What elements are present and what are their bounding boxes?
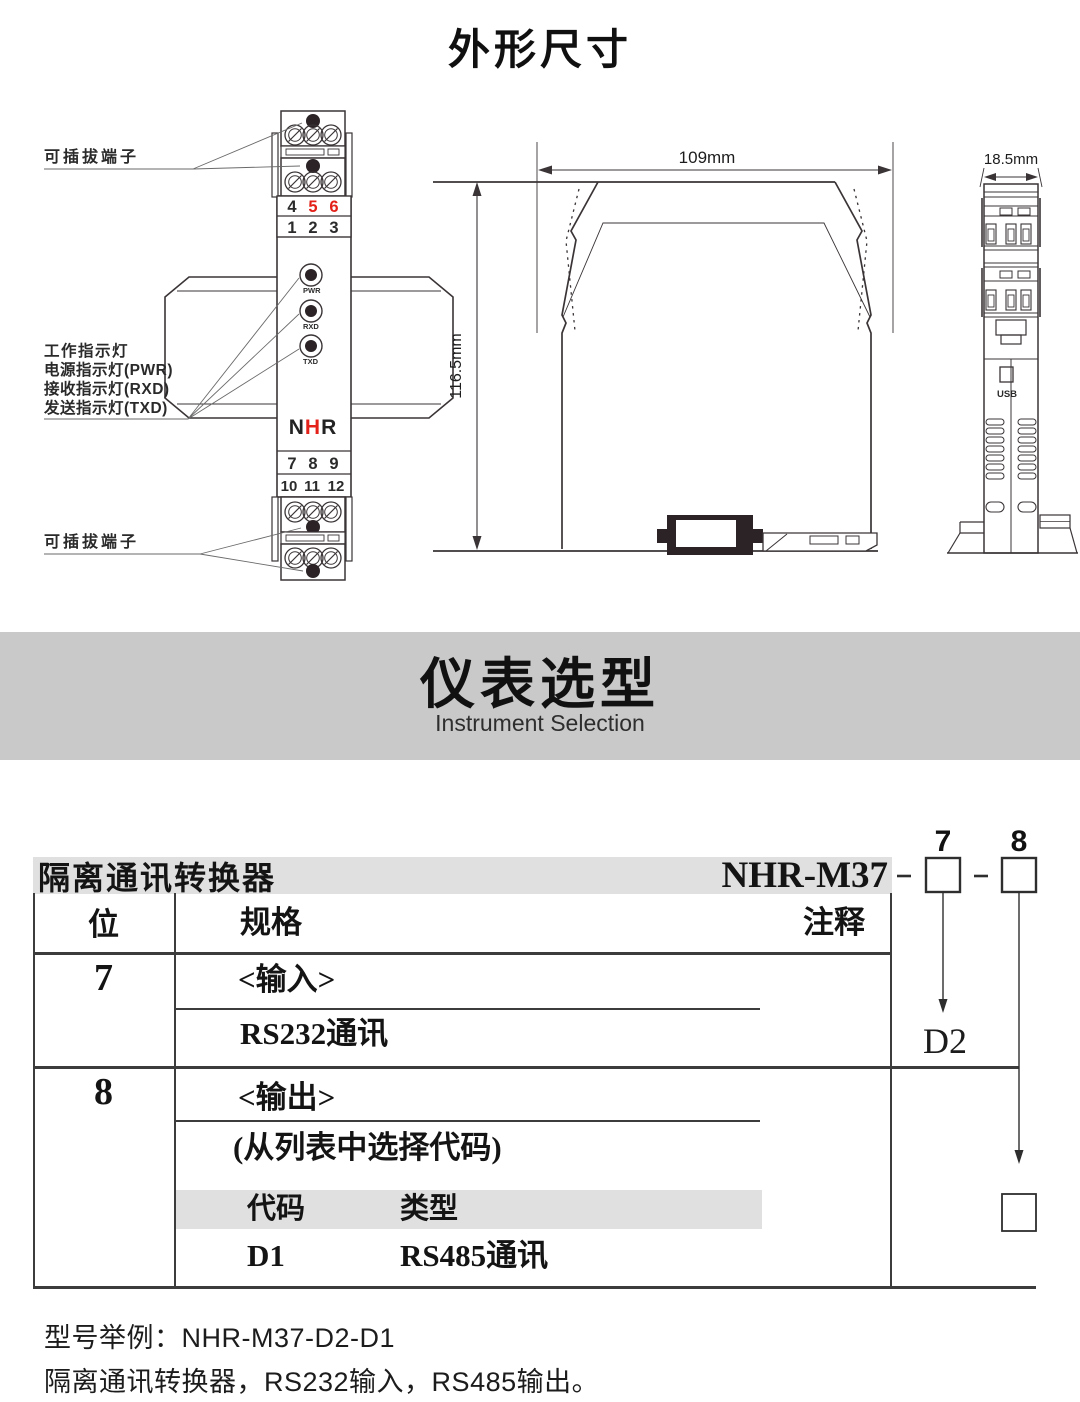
led-label-pwr: PWR: [303, 286, 321, 295]
dimension-drawings: 4 5 6 1 2 3 PWR RXD TXD NHR: [0, 0, 1080, 628]
label-indicator: 工作指示灯: [44, 341, 129, 360]
nhr-logo: NHR: [289, 416, 338, 439]
position-label-7: 7: [935, 825, 952, 858]
usb-label: USB: [997, 389, 1017, 400]
row8-hint: (从列表中选择代码): [233, 1131, 502, 1165]
arrow-7-head: [939, 999, 948, 1013]
header-note: 注释: [640, 906, 865, 940]
terminal-number: 11: [304, 478, 320, 495]
header-position: 位: [33, 908, 174, 942]
label-indicator: 接收指示灯(RXD): [44, 379, 170, 398]
status-leds: PWR RXD TXD: [300, 264, 322, 366]
terminal-number: 12: [328, 478, 345, 495]
table-subline-2: [176, 1120, 760, 1122]
banner-subtitle: Instrument Selection: [435, 712, 645, 735]
table-header-underline: [33, 952, 892, 955]
terminal-number: 3: [329, 219, 338, 237]
option-code: D1: [247, 1239, 285, 1273]
terminal-number: 7: [287, 455, 296, 473]
code-box-7: [926, 858, 960, 892]
position-label-8: 8: [1011, 825, 1028, 858]
indicator-labels: 工作指示灯 电源指示灯(PWR) 接收指示灯(RXD) 发送指示灯(TXD): [43, 341, 173, 417]
top-terminal-block: [272, 111, 352, 197]
dim-label-116-5mm: 116.5mm: [448, 333, 465, 399]
led-label-rxd: RXD: [303, 322, 319, 331]
terminal-number: 2: [308, 219, 317, 237]
terminal-number: 5: [308, 198, 317, 216]
terminal-number: 9: [329, 455, 338, 473]
terminal-number: 10: [281, 478, 298, 495]
label-indicator: 电源指示灯(PWR): [44, 360, 173, 379]
code-box-8: [1002, 858, 1036, 892]
label-indicator: 发送指示灯(TXD): [43, 398, 168, 417]
dim-label-18-5mm: 18.5mm: [984, 151, 1038, 168]
banner-title: 仪表选型: [420, 657, 660, 712]
section-banner: 仪表选型 Instrument Selection: [0, 632, 1080, 760]
label-pluggable-terminal-top: 可插拔端子: [44, 147, 139, 166]
profile-view: 18.5mm: [947, 151, 1078, 553]
terminal-number: 4: [287, 198, 297, 216]
led-label-txd: TXD: [303, 357, 319, 366]
selection-header-bar: 隔离通讯转换器 NHR-M37: [33, 857, 892, 894]
option-type: RS485通讯: [400, 1239, 548, 1273]
front-view: 4 5 6 1 2 3 PWR RXD TXD NHR: [43, 111, 453, 580]
row7-title: <输入>: [238, 963, 335, 997]
model-code: NHR-M37: [722, 854, 892, 897]
row8-title: <输出>: [238, 1081, 335, 1115]
terminal-numbers-top: 4 5 6 1 2 3: [277, 196, 351, 237]
arrow-8-head: [1015, 1150, 1024, 1164]
terminal-number: 8: [308, 455, 317, 473]
model-code-diagram: 7 8 D2: [880, 815, 1080, 1302]
terminal-number: 1: [287, 219, 296, 237]
dim-label-109mm: 109mm: [679, 148, 736, 167]
row8-position: 8: [33, 1072, 174, 1114]
example-model-line: 型号举例：NHR-M37-D2-D1: [44, 1316, 395, 1355]
label-pluggable-terminal-bottom: 可插拔端子: [44, 532, 139, 551]
product-name: 隔离通讯转换器: [33, 853, 276, 899]
row7-position: 7: [33, 958, 174, 1000]
dim-18-5mm: 18.5mm: [980, 151, 1042, 187]
code-header: 代码: [247, 1194, 305, 1226]
header-spec: 规格: [240, 906, 302, 940]
type-header: 类型: [400, 1194, 458, 1226]
row7-value: RS232通讯: [240, 1017, 388, 1051]
table-subline-1: [176, 1008, 760, 1010]
dim-116-5mm: 116.5mm: [448, 182, 482, 550]
example-description: 隔离通讯转换器，RS232输入，RS485输出。: [44, 1360, 599, 1399]
rail-clip: [657, 515, 877, 555]
side-view: 109mm 116.5mm: [433, 142, 893, 555]
dim-109mm: 109mm: [537, 142, 893, 333]
datasheet-page: 外形尺寸: [0, 0, 1080, 1402]
terminal-number: 6: [329, 198, 338, 216]
note-d2: D2: [923, 1021, 967, 1061]
answer-box-8: [1002, 1194, 1036, 1231]
table-row-separator: [33, 1066, 1019, 1069]
